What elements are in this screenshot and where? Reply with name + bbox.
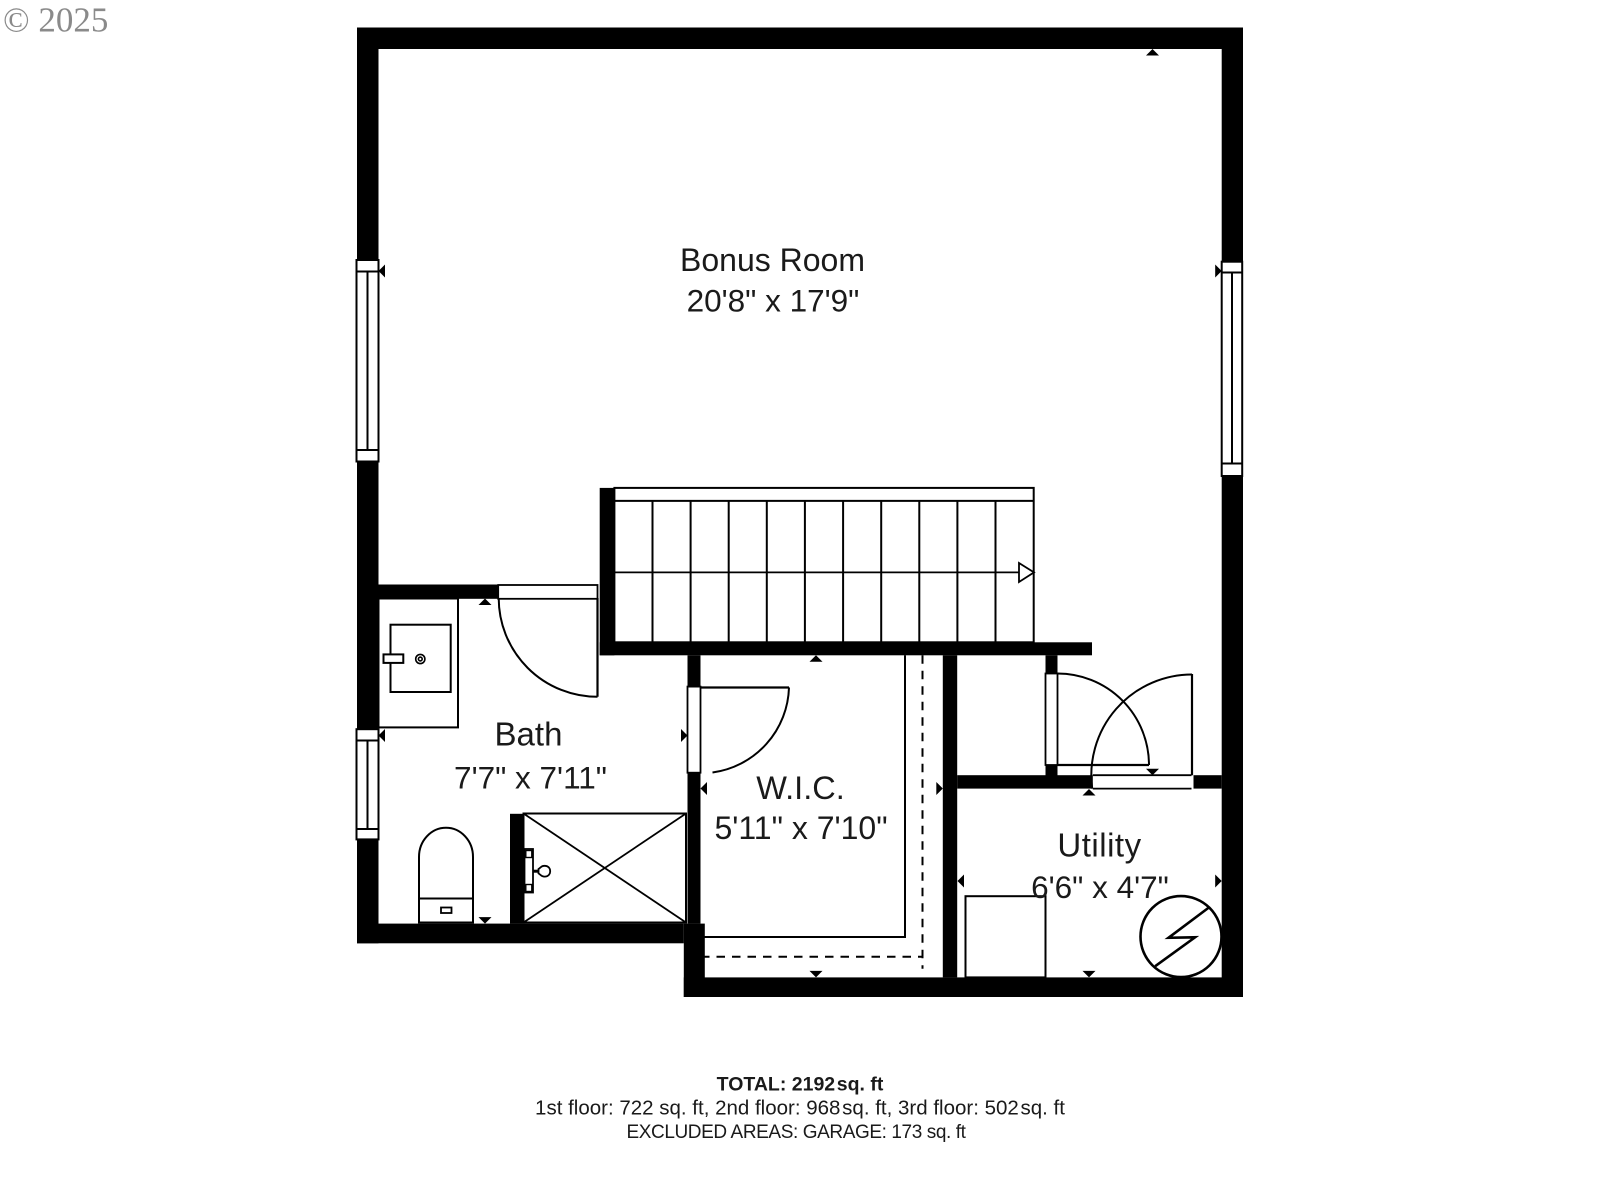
svg-text:© 2025: © 2025: [3, 1, 108, 40]
svg-text:5'11" x 7'10": 5'11" x 7'10": [714, 810, 887, 846]
svg-text:7'7" x 7'11": 7'7" x 7'11": [454, 760, 607, 796]
svg-text:Utility: Utility: [1057, 827, 1141, 864]
svg-text:W.I.C.: W.I.C.: [756, 770, 844, 806]
svg-text:TOTAL: 2192 sq. ft: TOTAL: 2192 sq. ft: [717, 1074, 884, 1096]
svg-text:Bath: Bath: [495, 715, 563, 752]
svg-text:20'8" x 17'9": 20'8" x 17'9": [687, 283, 860, 319]
svg-text:Bonus Room: Bonus Room: [680, 242, 865, 278]
svg-text:EXCLUDED AREAS: GARAGE: 173 sq: EXCLUDED AREAS: GARAGE: 173 sq. ft: [626, 1122, 966, 1143]
svg-text:6'6" x 4'7": 6'6" x 4'7": [1031, 869, 1169, 905]
svg-text:1st floor: 722 sq. ft, 2nd flo: 1st floor: 722 sq. ft, 2nd floor: 968 sq…: [535, 1097, 1065, 1120]
